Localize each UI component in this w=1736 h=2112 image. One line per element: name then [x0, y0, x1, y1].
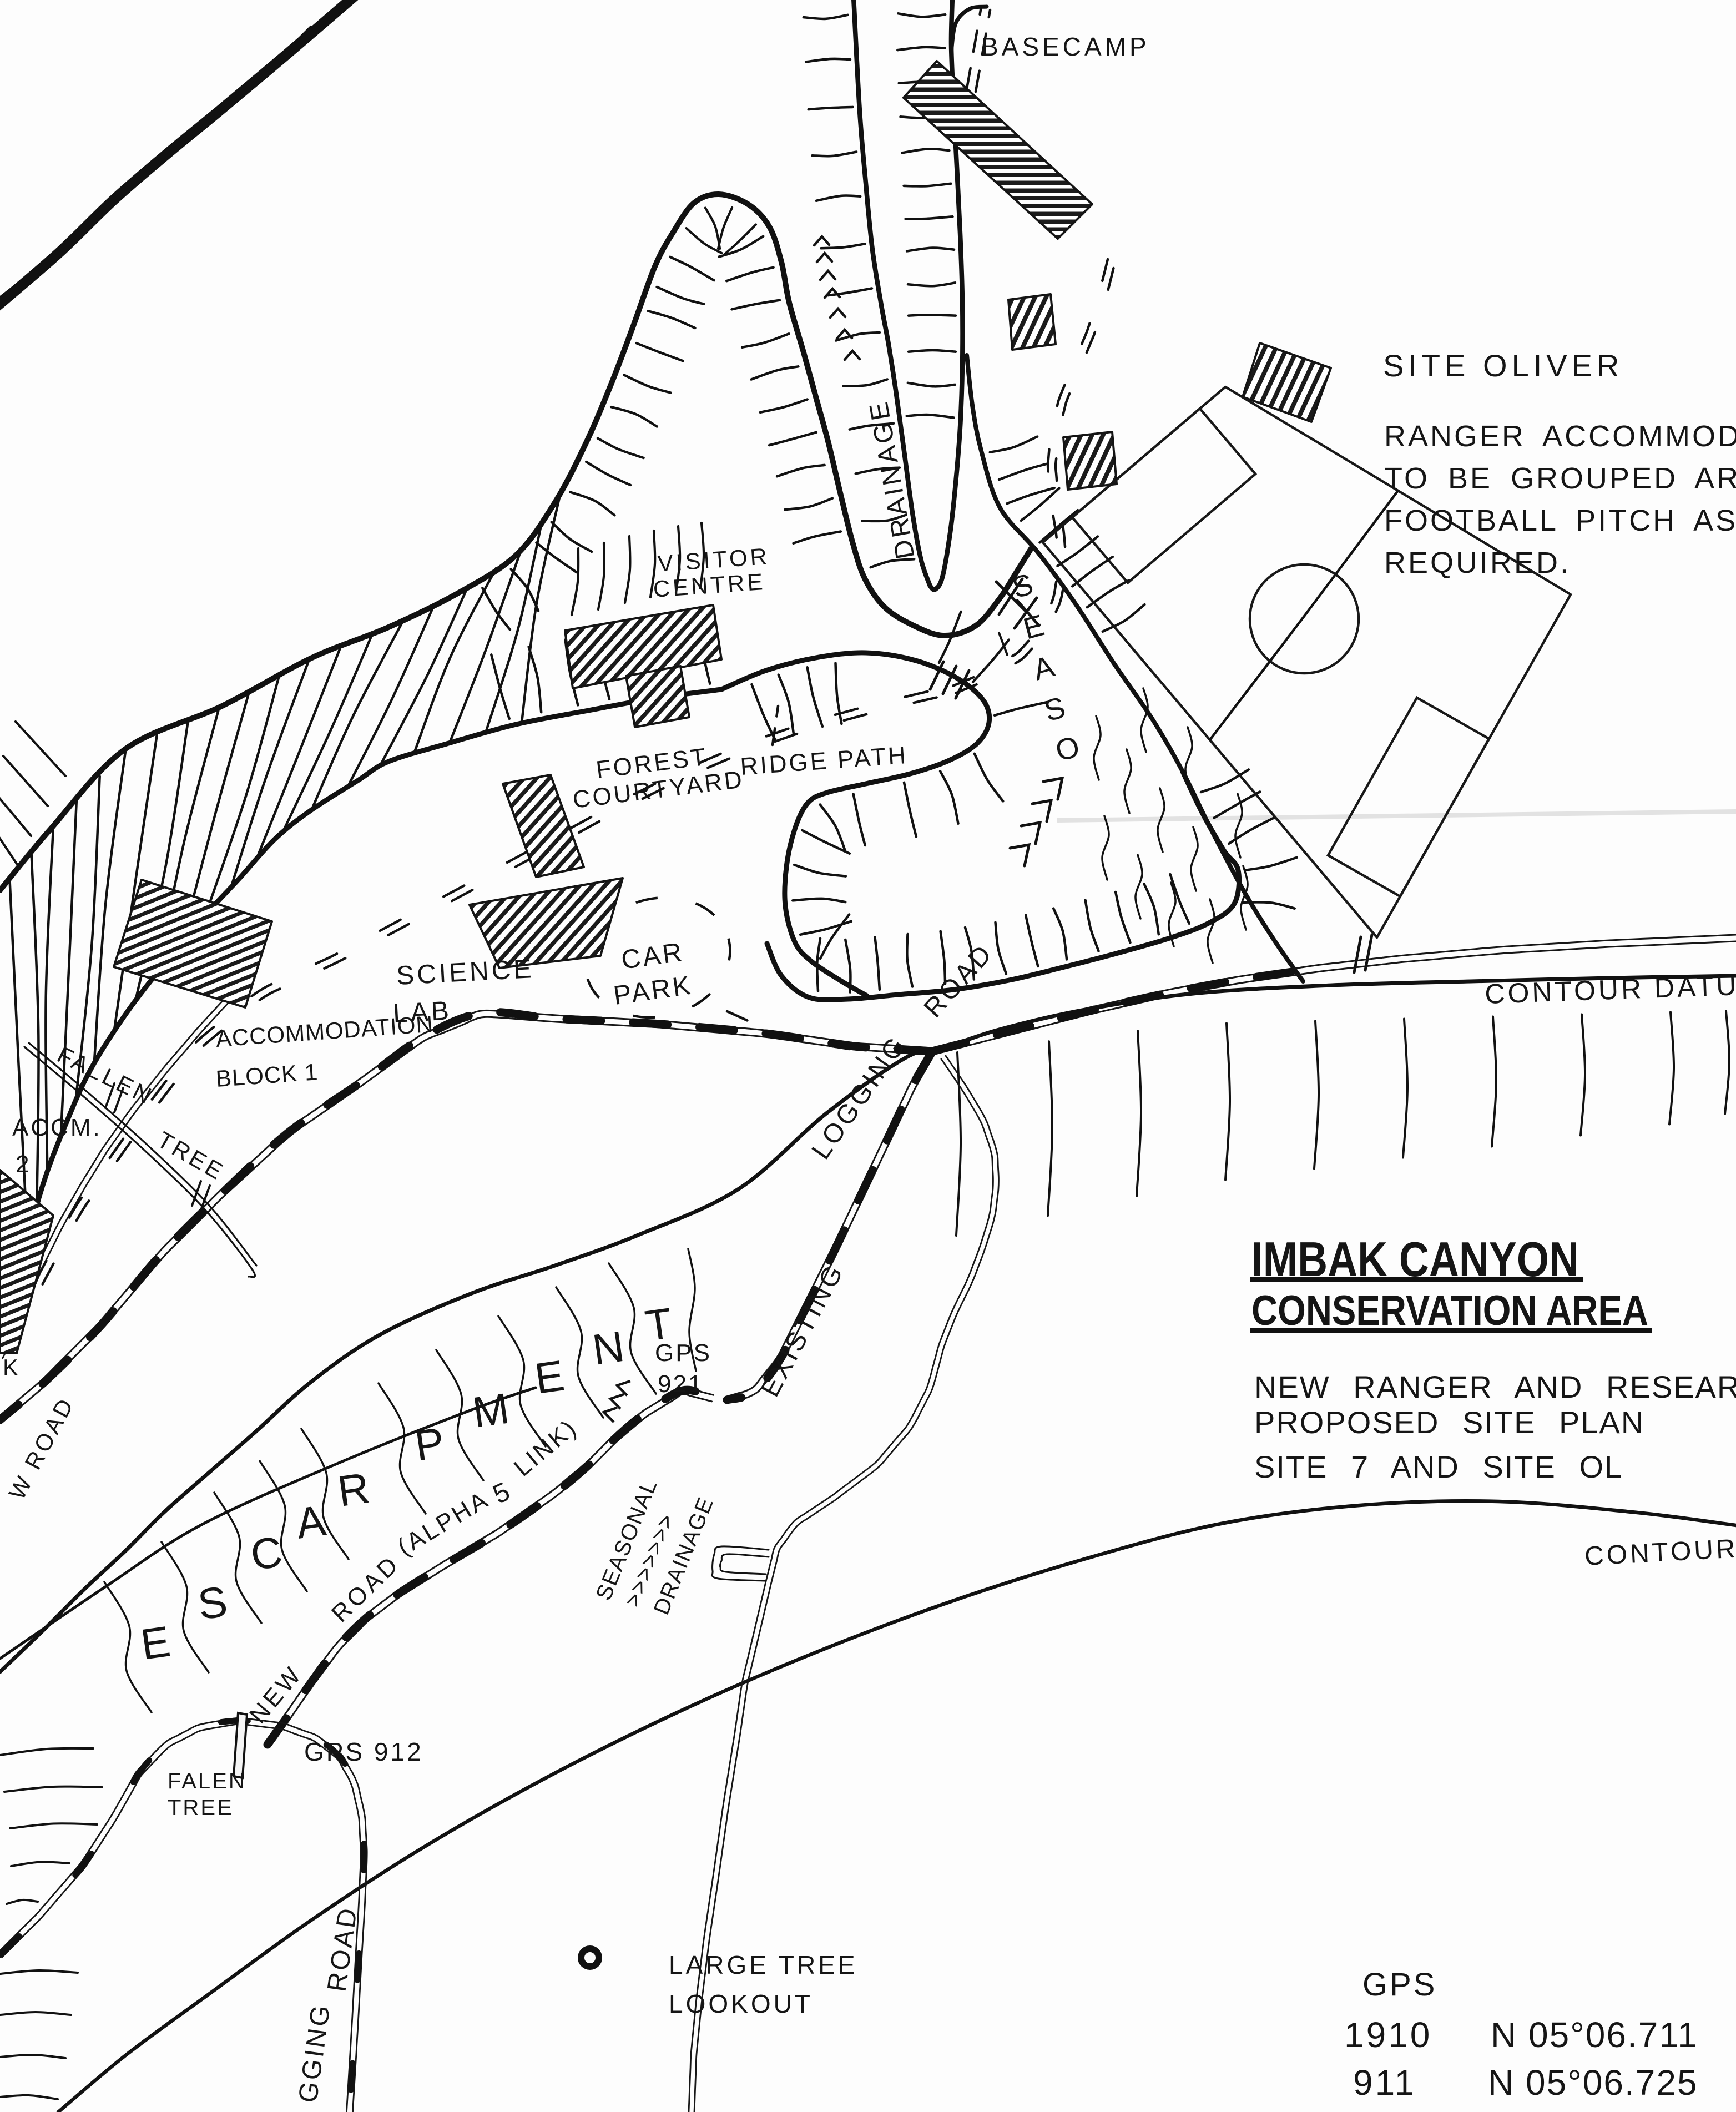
svg-text:FOOTBALL PITCH AS: FOOTBALL PITCH AS — [1384, 504, 1736, 537]
svg-text:NEW RANGER AND RESEARCH: NEW RANGER AND RESEARCH — [1254, 1369, 1736, 1404]
svg-text:SITE 7 AND SITE OL: SITE 7 AND SITE OL — [1254, 1449, 1623, 1484]
svg-text:N 05°06.725: N 05°06.725 — [1488, 2063, 1698, 2103]
svg-text:GPS 912: GPS 912 — [304, 1737, 423, 1766]
svg-text:LOOKOUT: LOOKOUT — [669, 1989, 813, 2018]
svg-text:911: 911 — [1353, 2063, 1416, 2103]
svg-text:LARGE TREE: LARGE TREE — [669, 1950, 858, 1979]
svg-text:921: 921 — [658, 1370, 703, 1398]
svg-text:M: M — [470, 1383, 514, 1437]
svg-text:N: N — [589, 1321, 629, 1374]
svg-text:ACCM.: ACCM. — [12, 1114, 102, 1141]
svg-text:SITE OLIVER: SITE OLIVER — [1383, 348, 1623, 383]
svg-text:RANGER ACCOMMODATION: RANGER ACCOMMODATION — [1384, 420, 1736, 453]
svg-text:FALEN: FALEN — [168, 1769, 246, 1793]
svg-text:CONSERVATION AREA: CONSERVATION AREA — [1251, 1287, 1648, 1334]
svg-text:2: 2 — [16, 1151, 31, 1178]
svg-text:R: R — [335, 1463, 374, 1515]
svg-text:TREE: TREE — [168, 1796, 234, 1820]
svg-text:BASECAMP: BASECAMP — [981, 32, 1150, 61]
svg-text:GPS: GPS — [655, 1339, 711, 1367]
svg-text:PROPOSED SITE PLAN: PROPOSED SITE PLAN — [1254, 1405, 1644, 1440]
svg-text:REQUIRED.: REQUIRED. — [1384, 546, 1571, 579]
svg-text:GPS: GPS — [1362, 1967, 1437, 2003]
svg-text:N 05°06.711: N 05°06.711 — [1491, 2015, 1698, 2055]
svg-text:TO BE GROUPED AROUND: TO BE GROUPED AROUND — [1384, 462, 1736, 495]
svg-text:1910: 1910 — [1344, 2015, 1432, 2055]
svg-text:K: K — [3, 1354, 20, 1380]
